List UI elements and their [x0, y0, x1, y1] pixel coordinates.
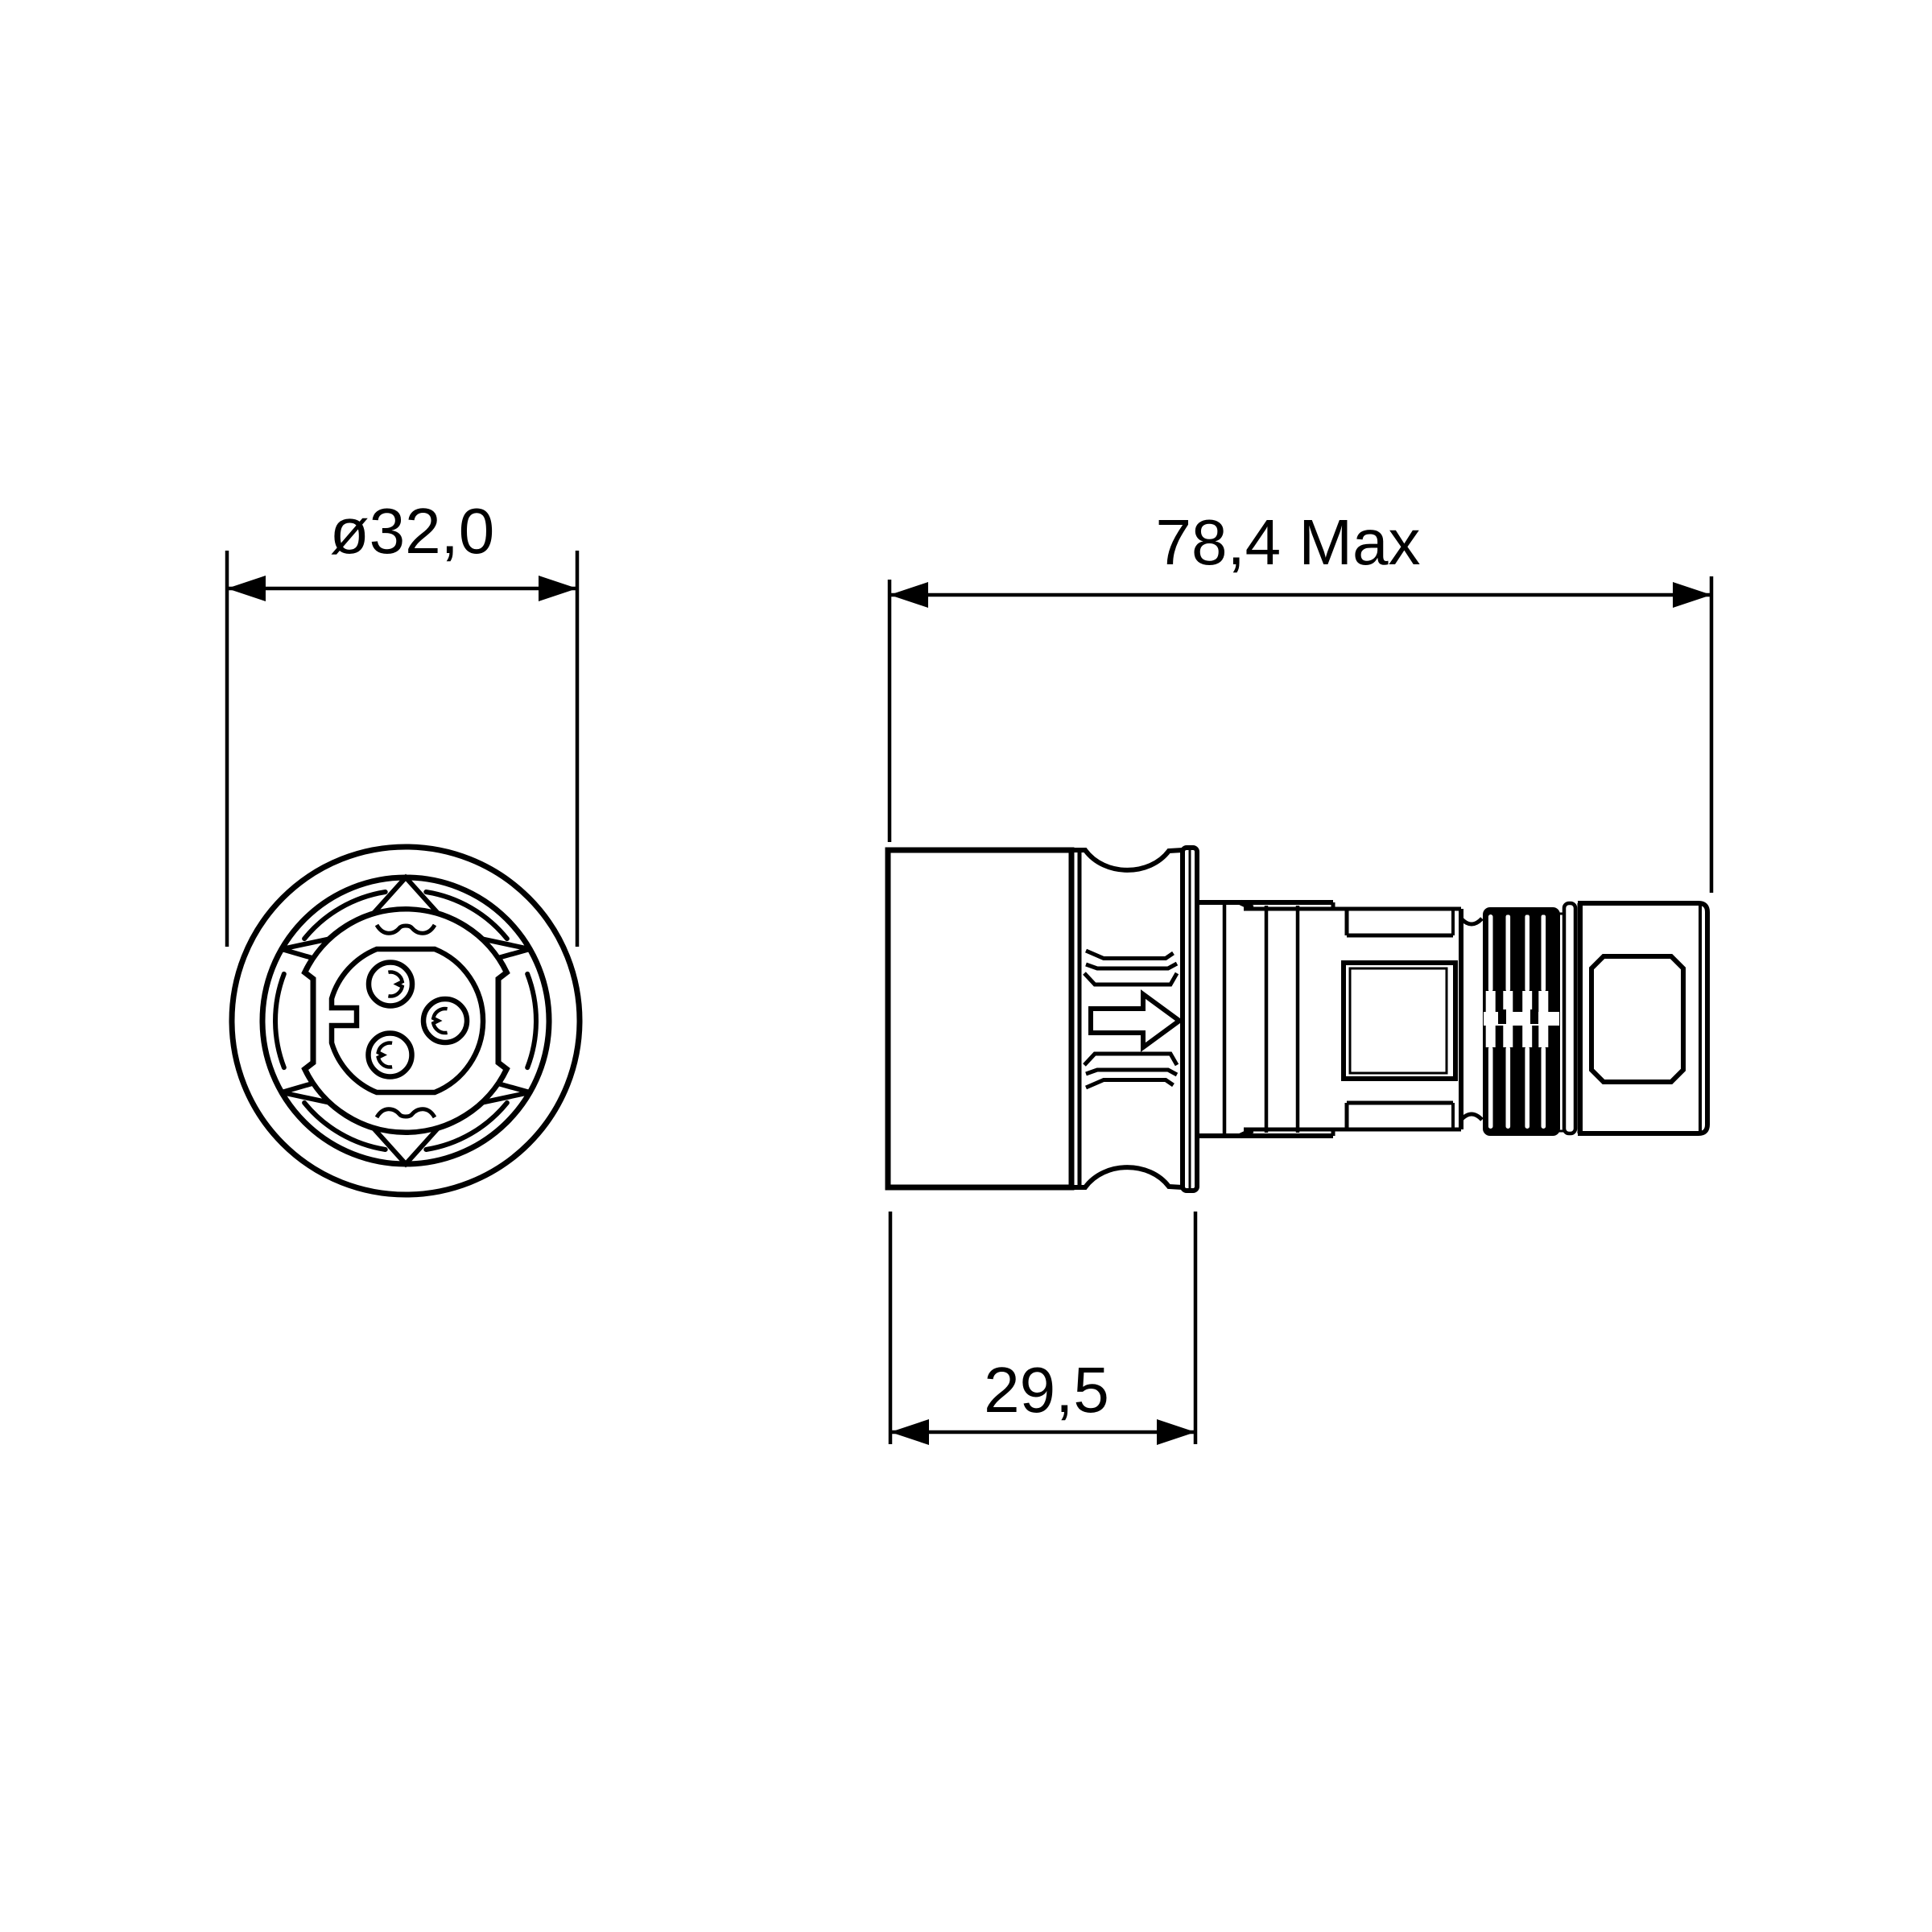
- svg-text:ø32,0: ø32,0: [330, 495, 495, 567]
- svg-text:29,5: 29,5: [984, 1354, 1109, 1426]
- svg-text:78,4 Max: 78,4 Max: [1155, 506, 1420, 578]
